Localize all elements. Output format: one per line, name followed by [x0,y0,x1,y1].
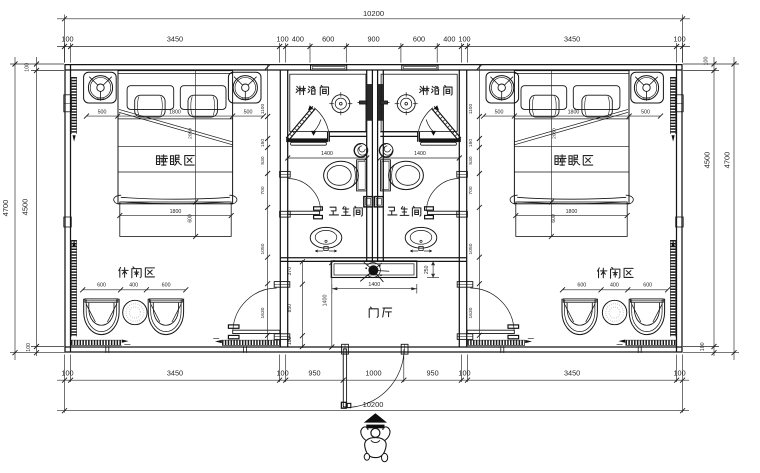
svg-text:1800: 1800 [170,209,182,215]
svg-text:1800: 1800 [568,110,580,116]
svg-text:1050: 1050 [260,243,266,254]
svg-text:500: 500 [98,110,107,116]
svg-text:4500: 4500 [21,199,30,216]
svg-text:10200: 10200 [363,400,384,409]
svg-text:600: 600 [97,283,106,289]
svg-text:950: 950 [427,368,439,377]
svg-text:3450: 3450 [167,368,183,377]
svg-text:1100: 1100 [260,103,266,114]
svg-text:100: 100 [25,63,31,72]
svg-text:400: 400 [610,283,619,289]
svg-text:600: 600 [413,34,425,43]
svg-text:3450: 3450 [167,34,183,43]
svg-text:100: 100 [61,368,73,377]
svg-text:530: 530 [260,156,266,164]
svg-text:100: 100 [674,368,686,377]
svg-text:1400: 1400 [322,295,328,307]
svg-text:1400: 1400 [368,282,380,288]
svg-text:1400: 1400 [321,151,333,157]
svg-text:600: 600 [577,283,586,289]
svg-text:1630: 1630 [260,307,266,318]
svg-text:600: 600 [188,214,194,223]
svg-text:10200: 10200 [363,9,384,18]
svg-text:900: 900 [368,34,380,43]
svg-text:150: 150 [260,139,266,147]
svg-text:530: 530 [468,156,474,164]
svg-text:600: 600 [551,214,557,223]
svg-text:250: 250 [424,265,430,274]
svg-text:100: 100 [700,342,706,351]
svg-text:370: 370 [287,267,293,276]
svg-text:180: 180 [287,337,293,346]
svg-text:1800: 1800 [566,209,578,215]
svg-text:600: 600 [162,283,171,289]
svg-text:950: 950 [308,368,320,377]
svg-text:100: 100 [26,343,32,352]
svg-text:100: 100 [674,34,686,43]
svg-text:1400: 1400 [414,151,426,157]
svg-text:4500: 4500 [703,152,712,169]
svg-text:400: 400 [443,34,455,43]
svg-text:100: 100 [458,34,470,43]
svg-text:3450: 3450 [564,368,580,377]
svg-text:1000: 1000 [365,368,381,377]
svg-text:100: 100 [277,34,289,43]
svg-text:150: 150 [468,139,474,147]
svg-text:600: 600 [322,34,334,43]
svg-text:600: 600 [643,283,652,289]
svg-text:500: 500 [244,110,253,116]
svg-text:500: 500 [495,110,504,116]
svg-text:500: 500 [641,110,650,116]
svg-text:2050: 2050 [188,128,194,139]
svg-text:700: 700 [468,186,474,194]
svg-text:850: 850 [287,304,293,313]
svg-text:100: 100 [458,368,470,377]
svg-text:100: 100 [704,57,710,66]
svg-text:400: 400 [292,34,304,43]
svg-text:100: 100 [61,34,73,43]
svg-text:100: 100 [277,368,289,377]
svg-text:700: 700 [260,186,266,194]
svg-text:400: 400 [129,283,138,289]
svg-text:3450: 3450 [564,34,580,43]
svg-text:1050: 1050 [468,243,474,254]
svg-text:1100: 1100 [468,103,474,114]
svg-text:4700: 4700 [723,152,732,169]
svg-text:1630: 1630 [468,307,474,318]
svg-text:1800: 1800 [169,110,181,116]
svg-text:2050: 2050 [552,128,558,139]
svg-text:4700: 4700 [1,200,10,217]
